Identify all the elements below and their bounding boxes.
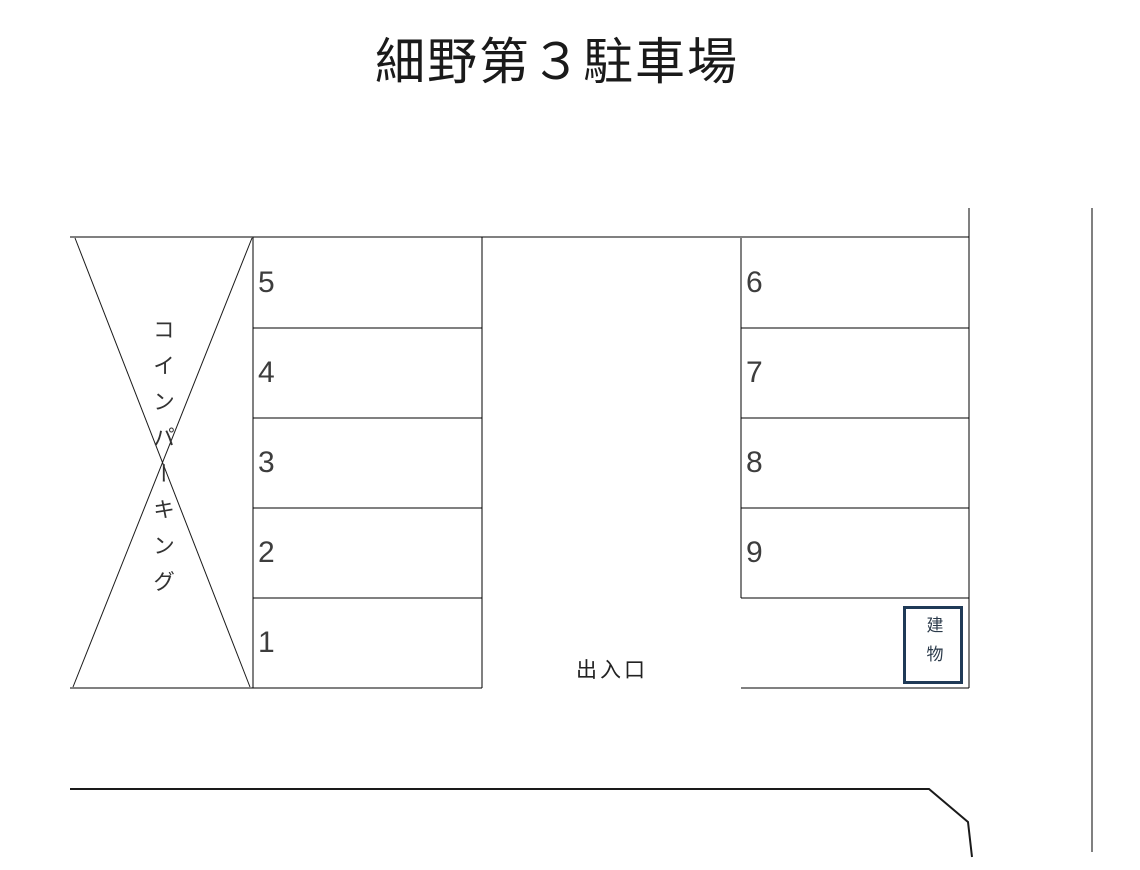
space-number-2: 2 xyxy=(258,537,275,569)
space-number-6: 6 xyxy=(746,267,763,299)
entrance-exit-label: 出入口 xyxy=(576,654,648,684)
space-number-9: 9 xyxy=(746,537,763,569)
building-label: 建物 xyxy=(921,616,946,674)
building-box: 建物 xyxy=(903,606,963,684)
road-line xyxy=(70,789,972,857)
space-number-3: 3 xyxy=(258,447,275,479)
space-number-5: 5 xyxy=(258,267,275,299)
parking-lot-map: 細野第３駐車場 xyxy=(0,0,1140,870)
coin-parking-label: コインパーキング xyxy=(146,318,178,610)
space-number-4: 4 xyxy=(258,357,275,389)
space-number-8: 8 xyxy=(746,447,763,479)
space-number-7: 7 xyxy=(746,357,763,389)
space-number-1: 1 xyxy=(258,627,275,659)
parking-grid-lines xyxy=(70,208,969,688)
